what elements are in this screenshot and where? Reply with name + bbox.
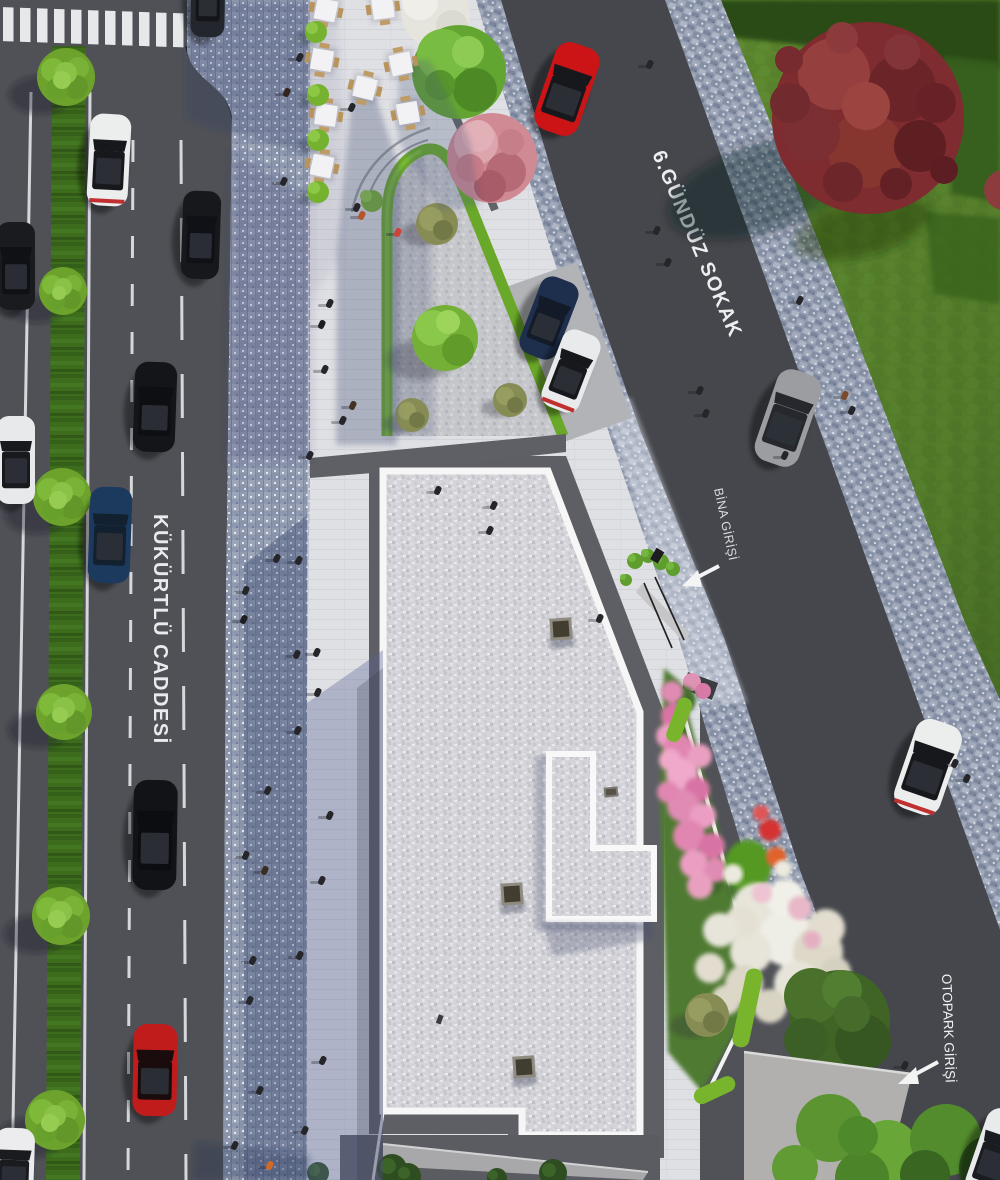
svg-text:KÜKÜRTLÜ CADDESİ: KÜKÜRTLÜ CADDESİ: [149, 514, 172, 745]
